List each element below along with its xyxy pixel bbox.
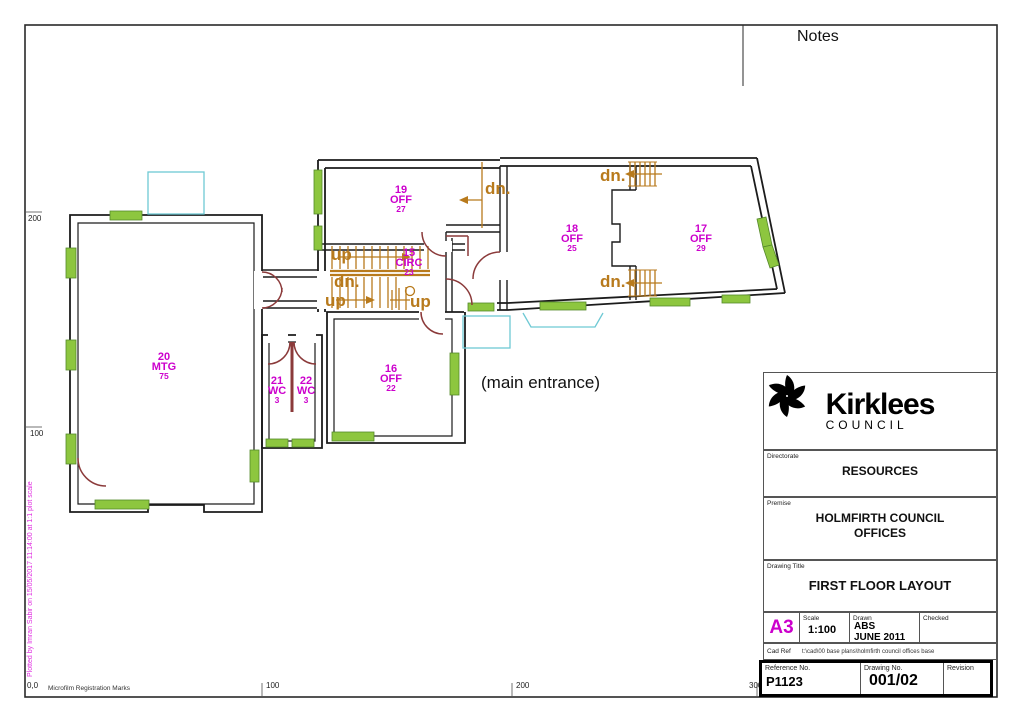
reference-no-cell: Reference No. P1123	[762, 663, 860, 694]
room-label-19: 19OFF27	[366, 185, 436, 214]
premise-label: Premise	[767, 500, 791, 507]
plot-note: Plotted by Imran Sabir on 15/05/2017 11:…	[27, 437, 34, 677]
directorate-label: Directorate	[767, 453, 799, 460]
reference-box: Reference No. P1123 Drawing No. 001/02 R…	[759, 660, 993, 697]
main-entrance-label: (main entrance)	[481, 373, 600, 393]
directorate-box: Directorate RESOURCES	[763, 450, 997, 497]
dn-label-wing-bottom: dn.	[600, 273, 626, 290]
directorate-value: RESOURCES	[764, 464, 996, 478]
dn-label-room19: dn.	[485, 180, 511, 197]
drawn-label: Drawn	[853, 615, 872, 622]
ruler-ticks	[26, 212, 757, 696]
up-label-spiral: up	[410, 293, 431, 310]
cad-ref-label: Cad Ref	[767, 648, 791, 655]
room-label-16: 16OFF22	[356, 364, 426, 393]
dn-label-main: dn.	[334, 273, 360, 290]
checked-label: Checked	[923, 615, 949, 622]
scale-value: 1:100	[808, 624, 849, 636]
paper-size: A3	[764, 613, 799, 642]
scale-row: A3 Scale 1:100 Drawn ABS JUNE 2011 Check…	[763, 612, 997, 643]
drawn-by: ABS	[854, 621, 919, 632]
bottom-tick-100: 100	[266, 681, 279, 690]
microfilm-label: Microfilm Registration Marks	[48, 685, 130, 692]
drawn-date: JUNE 2011	[854, 632, 919, 643]
room-label-15: 15CIRC23	[374, 248, 444, 277]
drawing-no-value: 001/02	[869, 672, 943, 690]
cad-ref-value: t:\cad\00 base plans\holmfirth council o…	[802, 649, 934, 655]
kirklees-logo-icon	[764, 373, 810, 419]
left-tick-200: 200	[28, 214, 41, 223]
drawing-no-label: Drawing No.	[864, 665, 903, 672]
up-label-main: up	[331, 246, 352, 263]
windows	[66, 170, 779, 509]
logo-box: Kirklees COUNCIL	[763, 372, 997, 450]
drawing-title-value: FIRST FLOOR LAYOUT	[764, 578, 996, 593]
drawing-sheet: Notes (main entrance) 20MTG75 21WC3 22WC…	[0, 0, 1024, 724]
bottom-tick-200: 200	[516, 681, 529, 690]
drawing-title-box: Drawing Title FIRST FLOOR LAYOUT	[763, 560, 997, 612]
drawn-cell: Drawn ABS JUNE 2011	[849, 613, 919, 642]
revision-cell: Revision	[943, 663, 990, 694]
room-label-18: 18OFF25	[537, 224, 607, 253]
logo-name: Kirklees	[826, 391, 935, 419]
reference-no-value: P1123	[766, 674, 860, 689]
up-label-lower: up	[325, 292, 346, 309]
notes-title: Notes	[797, 28, 839, 46]
scale-cell: Scale 1:100	[799, 613, 849, 642]
revision-label: Revision	[947, 665, 974, 672]
dn-label-wing-top: dn.	[600, 167, 626, 184]
cad-ref-row: Cad Ref t:\cad\00 base plans\holmfirth c…	[763, 643, 997, 660]
room-label-22: 22WC3	[271, 376, 341, 405]
drawing-no-cell: Drawing No. 001/02	[860, 663, 943, 694]
premise-value: HOLMFIRTH COUNCIL OFFICES	[800, 511, 960, 541]
room-label-20: 20MTG75	[129, 352, 199, 381]
room-label-17: 17OFF29	[666, 224, 736, 253]
paper-size-cell: A3	[764, 613, 799, 642]
scale-label: Scale	[803, 615, 819, 622]
drawing-title-label: Drawing Title	[767, 563, 805, 570]
premise-box: Premise HOLMFIRTH COUNCIL OFFICES	[763, 497, 997, 560]
reference-no-label: Reference No.	[765, 665, 810, 672]
checked-cell: Checked	[919, 613, 998, 642]
origin-label: 0,0	[27, 681, 38, 690]
